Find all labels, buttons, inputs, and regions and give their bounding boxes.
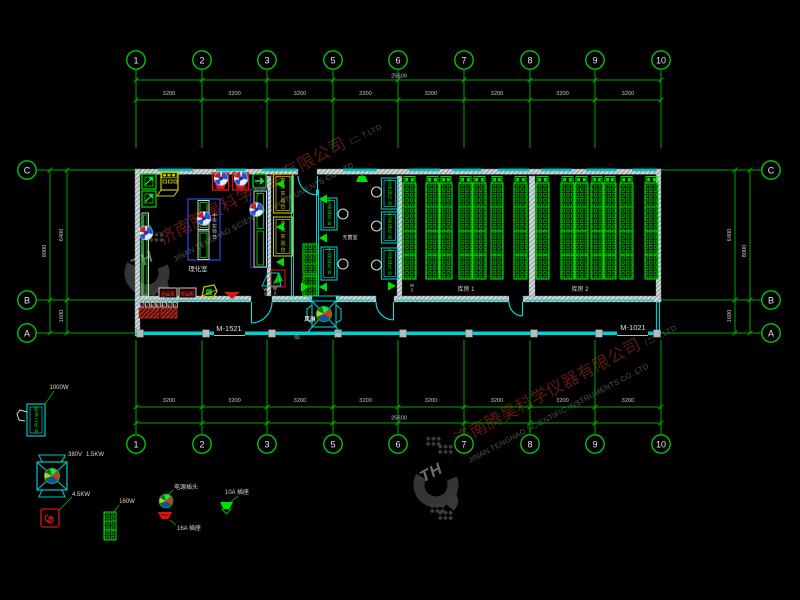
- svg-text:3200: 3200: [359, 398, 372, 404]
- svg-text:10: 10: [656, 55, 666, 65]
- svg-text:1: 1: [133, 439, 138, 449]
- svg-text:160W: 160W: [119, 499, 135, 505]
- svg-text:无菌操作台: 无菌操作台: [388, 249, 393, 277]
- svg-text:9: 9: [592, 439, 597, 449]
- svg-text:1600: 1600: [727, 310, 733, 323]
- svg-text:3200: 3200: [425, 91, 438, 97]
- svg-text:6400: 6400: [59, 229, 65, 242]
- svg-text:3200: 3200: [294, 398, 307, 404]
- svg-text:3: 3: [264, 439, 269, 449]
- svg-text:B: B: [768, 295, 774, 305]
- svg-text:3200: 3200: [294, 91, 307, 97]
- svg-text:380V: 380V: [68, 452, 82, 458]
- svg-text:5: 5: [330, 55, 335, 65]
- svg-text:C: C: [768, 165, 775, 175]
- svg-text:4.5KW: 4.5KW: [72, 492, 90, 498]
- svg-text:M-1521: M-1521: [216, 324, 241, 333]
- svg-text:B: B: [24, 295, 30, 305]
- svg-text:电源插头: 电源插头: [174, 483, 198, 491]
- svg-text:超净工作台: 超净工作台: [34, 406, 39, 435]
- svg-text:无菌操作台: 无菌操作台: [327, 248, 332, 276]
- svg-text:5: 5: [330, 439, 335, 449]
- svg-text:25600: 25600: [391, 74, 407, 80]
- svg-text:6: 6: [395, 439, 400, 449]
- svg-text:1000W: 1000W: [49, 385, 68, 391]
- svg-text:3200: 3200: [491, 398, 504, 404]
- svg-text:6: 6: [395, 55, 400, 65]
- svg-text:3: 3: [264, 55, 269, 65]
- svg-text:无菌操作台: 无菌操作台: [327, 199, 332, 227]
- svg-text:3200: 3200: [163, 398, 176, 404]
- svg-text:6400: 6400: [727, 229, 733, 242]
- svg-text:库房 1: 库房 1: [457, 285, 475, 293]
- svg-text:3200: 3200: [425, 398, 438, 404]
- svg-text:65: 65: [294, 335, 300, 341]
- svg-text:3200: 3200: [491, 91, 504, 97]
- svg-text:10: 10: [656, 439, 666, 449]
- svg-text:A: A: [24, 328, 30, 338]
- svg-text:1600: 1600: [59, 310, 65, 323]
- svg-text:理化室: 理化室: [188, 264, 208, 273]
- svg-text:1: 1: [133, 55, 138, 65]
- svg-text:中央实验台: 中央实验台: [212, 212, 217, 240]
- svg-text:无菌室: 无菌室: [342, 234, 357, 241]
- svg-text:8000: 8000: [42, 245, 48, 258]
- svg-text:库房 2: 库房 2: [571, 285, 589, 293]
- svg-text:3200: 3200: [359, 91, 372, 97]
- svg-text:3200: 3200: [556, 91, 569, 97]
- svg-text:7: 7: [461, 55, 466, 65]
- svg-text:9: 9: [592, 55, 597, 65]
- svg-text:8: 8: [527, 439, 532, 449]
- svg-text:3200: 3200: [163, 91, 176, 97]
- svg-text:3200: 3200: [228, 398, 241, 404]
- svg-text:3200: 3200: [622, 398, 635, 404]
- svg-text:无菌操作台: 无菌操作台: [388, 213, 393, 241]
- svg-text:3200: 3200: [228, 91, 241, 97]
- svg-text:M-1021: M-1021: [620, 323, 645, 332]
- svg-text:A: A: [768, 328, 774, 338]
- svg-text:C: C: [24, 165, 31, 175]
- svg-text:3200: 3200: [556, 398, 569, 404]
- svg-text:2: 2: [199, 439, 204, 449]
- svg-text:风淋: 风淋: [304, 315, 316, 323]
- svg-text:无菌操作台: 无菌操作台: [388, 179, 393, 207]
- svg-text:1.5KW: 1.5KW: [86, 452, 104, 458]
- svg-text:8: 8: [527, 55, 532, 65]
- svg-text:3200: 3200: [622, 91, 635, 97]
- svg-text:样品柜: 样品柜: [181, 291, 195, 298]
- svg-text:16A 插座: 16A 插座: [177, 524, 201, 532]
- svg-text:7: 7: [461, 439, 466, 449]
- svg-text:配电柜配电柜: 配电柜配电柜: [141, 295, 165, 301]
- svg-text:8000: 8000: [742, 245, 748, 258]
- svg-text:2: 2: [199, 55, 204, 65]
- svg-text:25600: 25600: [391, 416, 407, 422]
- svg-text:10A 插座: 10A 插座: [225, 488, 249, 496]
